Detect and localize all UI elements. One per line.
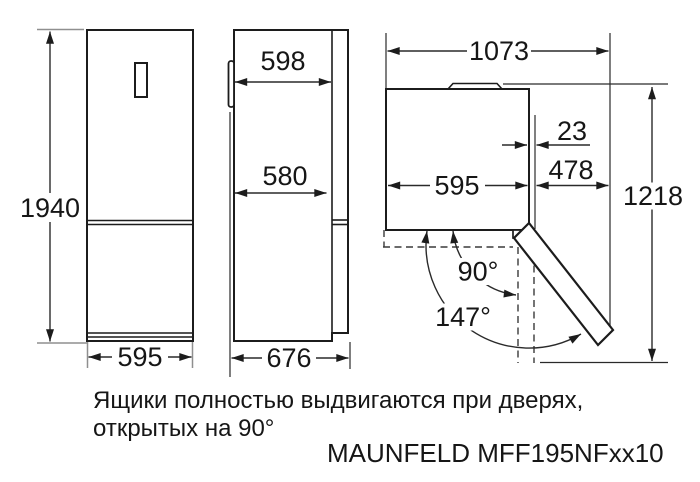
depth-open-label: 1218 — [623, 181, 683, 211]
width-total-label: 1073 — [469, 36, 529, 66]
side-depth-body-label: 580 — [262, 161, 307, 191]
side-depth-door-label: 598 — [260, 46, 305, 76]
side-view: 598 580 676 — [229, 30, 351, 377]
open-door-panel — [514, 223, 613, 345]
model-name-label: MAUNFELD MFF195NFxx10 — [327, 438, 664, 468]
top-view: 1073 23 478 595 1218 90° 147° — [383, 33, 683, 363]
footnote-line-2: открытых на 90° — [93, 415, 274, 442]
angle-90-label: 90° — [458, 257, 499, 287]
front-width-label: 595 — [117, 342, 162, 372]
door-clearance-label: 23 — [557, 116, 587, 146]
side-depth-total-label: 676 — [266, 343, 311, 373]
top-cabinet-outline — [386, 89, 529, 230]
door-projection-label: 478 — [548, 155, 593, 185]
front-view: 1940 595 — [20, 30, 193, 373]
footnote: Ящики полностью выдвигаются при дверях, … — [93, 387, 664, 468]
top-width-label: 595 — [434, 171, 479, 201]
angle-147-label: 147° — [435, 302, 491, 332]
fridge-dimension-diagram: 1940 595 598 580 676 — [0, 0, 700, 482]
side-door-handle — [229, 61, 235, 107]
footnote-line-1: Ящики полностью выдвигаются при дверях, — [93, 387, 583, 414]
front-display-panel — [135, 63, 147, 97]
front-height-label: 1940 — [20, 193, 80, 223]
dimension-drawing-page: 1940 595 598 580 676 — [0, 0, 700, 482]
